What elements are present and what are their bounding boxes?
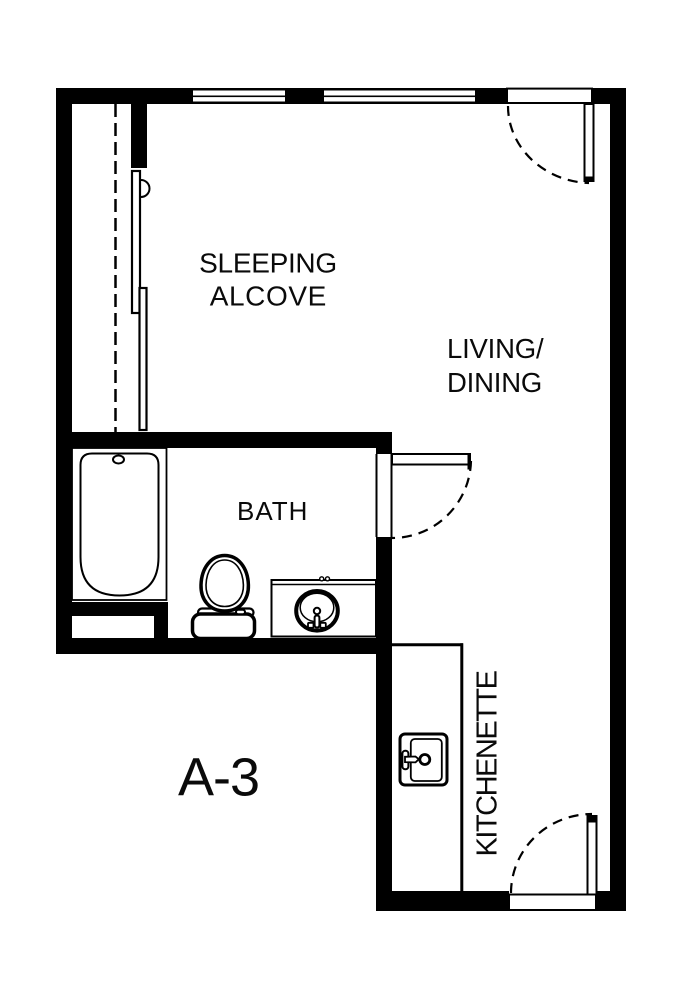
- svg-text:LIVING/: LIVING/: [447, 333, 544, 364]
- svg-text:ALCOVE: ALCOVE: [210, 280, 327, 311]
- svg-text:A-3: A-3: [178, 748, 259, 808]
- svg-text:SLEEPING: SLEEPING: [199, 248, 337, 279]
- svg-text:BATH: BATH: [237, 496, 308, 526]
- svg-text:DINING: DINING: [447, 367, 542, 398]
- svg-text:KITCHENETTE: KITCHENETTE: [471, 670, 503, 856]
